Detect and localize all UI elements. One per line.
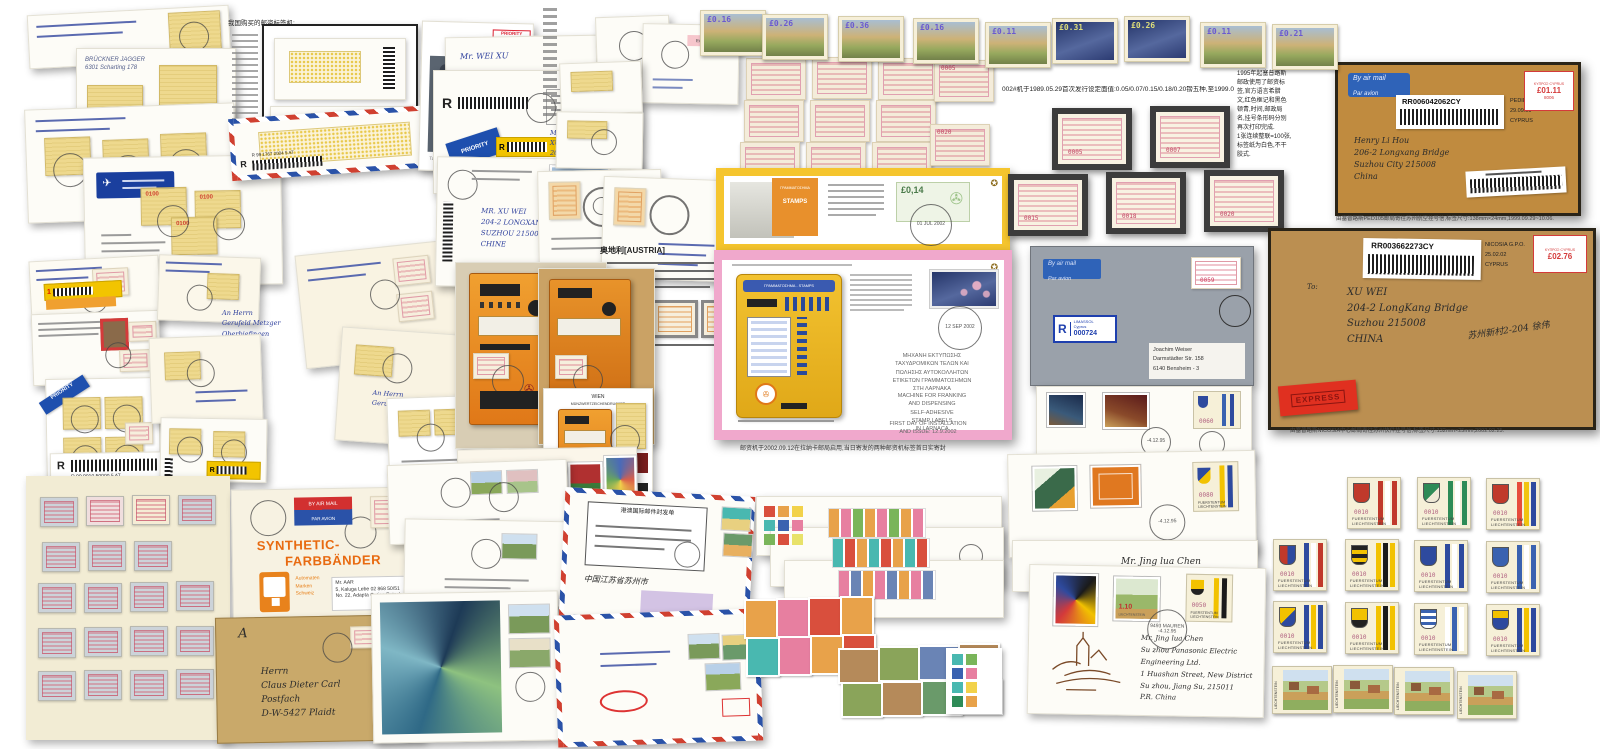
album-frama-stamp (88, 541, 126, 571)
country-text: FUERSTENTUMLIECHTENSTEIN (1190, 611, 1218, 619)
logo-cross (272, 598, 280, 606)
express-text: EXPRESS (1290, 389, 1346, 407)
cn-vertical-text (543, 4, 557, 116)
greek-text-block: ΜΗΧΑΝΗ ΕΚΤΥΠΩΣΗΣΤΑΧΥΔΡΟΜΙΚΩΝ ΤΕΛΩΝ ΚΑΙΠΩ… (872, 352, 992, 393)
stamp-mat: 0015 (1014, 180, 1082, 230)
mini-scene-stamp (881, 681, 923, 717)
atm-stamp-0060: 0060 (1193, 391, 1241, 429)
honeycomb-cover-1 (274, 38, 406, 100)
album-frama-stamp (84, 583, 122, 613)
cn-note-line: 胶式. (1237, 151, 1301, 160)
postmark-icon (71, 405, 99, 433)
stripe (1531, 482, 1536, 526)
machine-panel (564, 430, 606, 444)
posthorn-icon: ✇ (763, 390, 770, 399)
handwriting-line (658, 243, 714, 247)
title-line2: FARBBÄNDER (285, 552, 381, 569)
po-country: CYPRUS (1510, 117, 1546, 127)
blossom-stamp (930, 270, 998, 308)
handwriting-line (308, 273, 366, 281)
shield-icon (1351, 545, 1368, 565)
liechtenstein-arms-stamp: 0010 FUERSTENTUMLIECHTENSTEIN (1486, 604, 1540, 656)
stamp-print (815, 105, 865, 137)
shield-icon (1191, 580, 1204, 595)
society-logo-icon: ✪ (990, 178, 998, 189)
cyprus-stamp-machine: ΓΡΑΜΜΑΤΟΣΗΜΑ - STAMPS ✇ (736, 274, 842, 418)
stamp-print (134, 630, 164, 652)
to-marker: To: (1307, 283, 1318, 291)
postcard-atm-2 (600, 176, 727, 282)
barcode (507, 142, 547, 152)
brochure-caption-cn: 邮资机于2002.09.12在拉纳卡邮局启用,当日寄发的两种邮资机标签首日实寄封 (740, 446, 1010, 454)
stamp-value: 0010 (1354, 509, 1368, 516)
english-line: MACHINE FOR FRANKING (872, 392, 992, 400)
village-scene-stamp: LIECHTENSTEIN (1333, 665, 1393, 713)
handwritten-address: Henry Li Hou206-2 Longxang BridgeSuzhou … (1354, 135, 1449, 183)
stamp-print (129, 426, 149, 440)
stamp-value: £0.16 (707, 15, 731, 24)
card-stack-1 (559, 61, 643, 116)
postmark-icon (1219, 295, 1251, 327)
addr-line: China (1354, 171, 1449, 183)
handwritten-address: HerrnClaus Dieter CarlPostfachD-W-5427 P… (261, 665, 341, 722)
drawing-lines (1098, 473, 1132, 500)
stamp-value: £0.21 (1279, 29, 1303, 38)
postmark-date: -4.12.95 (1147, 439, 1165, 445)
honeycomb-meter-label (289, 51, 361, 83)
barcode (458, 97, 528, 109)
postmark-icon (416, 423, 445, 452)
stamp-art: £0.26 (766, 18, 824, 56)
scene-art (1283, 670, 1328, 710)
meter-number: 8006 (1544, 95, 1554, 100)
barcode (1368, 254, 1474, 276)
cyprus-pink-atm-stamp (810, 100, 870, 142)
synthetic-logo (259, 572, 290, 613)
barcode (217, 466, 247, 475)
poster-line1: ΓΡΑΜΜΑΤΟΣΗΜΑ (772, 186, 818, 190)
machine-title: ΓΡΑΜΜΑΤΟΣΗΜΑ - STAMPS (764, 284, 814, 288)
po-date: 25.02.02 (1485, 251, 1525, 261)
country-vertical-text: LIECHTENSTEIN (1335, 680, 1339, 708)
album-frama-stamp (84, 627, 122, 657)
stamp-value: £0.31 (1059, 23, 1083, 32)
stamp-print (617, 191, 642, 222)
stamp-value: 0010 (1280, 571, 1294, 578)
air-line1: By air mail (1048, 261, 1096, 267)
pink-atm-stamp: 0059 (1191, 257, 1241, 289)
house-shape (1411, 683, 1421, 691)
english-line: SELF-ADHESIVE (872, 409, 992, 417)
cyprus-pink-atm-stamp (746, 58, 806, 100)
stamp-print (132, 325, 152, 338)
cover-small-right: R (159, 417, 267, 483)
cn-airmail-env-2 (554, 608, 763, 747)
addr-line: P.R. China (1140, 692, 1263, 706)
stripe (1531, 545, 1536, 589)
stamp-print (182, 499, 212, 521)
text-line (828, 208, 884, 210)
handwritten-name: Mr. WEI XU (460, 51, 509, 61)
postmark-icon (488, 482, 519, 513)
small-stamp (508, 604, 551, 635)
postmark-icon (674, 541, 701, 568)
addr-block: Joachim WeiserDarmstädter Str. 1586140 B… (1153, 346, 1241, 374)
machine-display (747, 299, 777, 307)
country-vertical-text: LIECHTENSTEIN (1396, 682, 1400, 710)
christmas-stamp-1 (1047, 393, 1085, 427)
posthorn-icon: ✇ (950, 189, 963, 209)
address-line (101, 234, 131, 237)
shield-icon (1353, 483, 1370, 503)
stripe (1222, 394, 1226, 426)
first-day-line: AND ISSUE: 12.9.2002 (868, 428, 988, 436)
button-column (797, 317, 807, 375)
stamp-print (180, 585, 210, 607)
stamp-print (90, 500, 120, 522)
stamp-value: 0010 (1352, 571, 1366, 578)
frama-red-stamp (392, 255, 431, 287)
addr-line: CHINA (1347, 332, 1468, 348)
frama-red-stamp (125, 422, 153, 444)
postmark-icon (447, 169, 478, 200)
stamp-value: 0015 (1024, 215, 1038, 222)
country-text: FUERSTENTUMLIECHTENSTEIN (1278, 579, 1312, 588)
body-text (850, 309, 904, 311)
austria-atm-stamp (652, 300, 698, 338)
sub-line: Automaten (295, 575, 319, 583)
addr-line: Herrn (261, 665, 341, 680)
stamp-print (92, 545, 122, 567)
album-frama-stamp (86, 496, 124, 526)
abstract-painting (380, 600, 502, 734)
color-swatch (952, 682, 963, 693)
registration-code: RR003662273CY (1371, 241, 1434, 251)
stamp-print (397, 259, 427, 282)
album-frama-stamp (178, 495, 216, 525)
sender-line: BRÜCKNER JAGGER (85, 57, 145, 65)
r-mark: R (1058, 322, 1071, 336)
special-cancel-icon (649, 194, 690, 235)
r-mark: R (499, 143, 505, 152)
body-text (850, 279, 912, 281)
liechtenstein-arms-stamp: 0010 FUERSTENTUMLIECHTENSTEIN (1273, 539, 1327, 591)
text-line (828, 190, 884, 192)
body-text (850, 289, 912, 291)
stamp-print (42, 675, 72, 697)
brown-envelope-1: By air mail Par avion RR006042062CY PEDI… (1335, 62, 1581, 216)
stamp-value: 0059 (1200, 277, 1214, 284)
machine-display (565, 416, 589, 424)
mini-stamp-strip-2 (832, 538, 930, 568)
po-country: CYPRUS (1485, 261, 1525, 271)
address-line (445, 578, 529, 581)
synthetic-sub: AutomatenMarkenSchweiz (295, 575, 320, 598)
cn-note-line: 标签纸为白色,不干 (1237, 142, 1301, 151)
cyprus-atm-stamp: £0.31 (1052, 18, 1118, 64)
brochure-yellow: ΓΡΑΜΜΑΤΟΣΗΜΑ STAMPS £0,14 ✇ 01 JUL 2002 … (716, 168, 1010, 252)
shield-icon (1423, 483, 1440, 503)
austria-heading: 奥地利[AUSTRIA] (600, 246, 665, 256)
country-text: FUERSTENTUMLIECHTENSTEIN (1491, 518, 1525, 527)
red-meter-stamp: ΚΥΠΡΟΣ·CYPRUS £02.76 (1533, 235, 1587, 273)
marking-a: A (238, 626, 248, 641)
postmark-icon (177, 436, 203, 462)
shield-icon (1420, 609, 1437, 629)
cn-stamp (687, 633, 720, 660)
cyprus-atm-stamp: £0.16 (913, 18, 979, 64)
stamp-value: £0.11 (1207, 27, 1231, 36)
mini-atm-stamp (840, 596, 874, 636)
album-frama-stamp (176, 626, 214, 656)
art-stamp (1032, 466, 1077, 511)
stripe (1318, 605, 1323, 649)
stamp-print (134, 586, 164, 608)
postmark-date: 12 SEP 2002 (945, 325, 974, 331)
album-frama-stamp (38, 628, 76, 658)
barcode-vertical (383, 47, 395, 89)
brochure-pink: ✪ ΓΡΑΜΜΑΤΟΣΗΜΑ - STAMPS ✇ 12 SEP (714, 250, 1012, 440)
handwriting-line (195, 390, 247, 394)
village-sketch-drawing (1046, 627, 1142, 695)
postmark-town-date: -4.12.95 (1158, 519, 1176, 525)
sub-line: Schweiz (296, 590, 320, 598)
registered-label: R LIMASSOLCyprus000724 (1053, 315, 1117, 343)
stamp-value: 0010 (1352, 634, 1366, 641)
stamp-art: £0.31 (1056, 22, 1114, 60)
framed-atm-stamp: 0015 (1008, 174, 1088, 236)
cn-stamp (705, 662, 742, 691)
bird-icon: ✈ (102, 176, 111, 189)
shield-icon (1420, 546, 1437, 566)
greek-line: ΠΩΛΗΣΗΣ ΑΥΤΟΚΟΛΛΗΤΩΝ (872, 369, 992, 377)
addr-line: Suzhou 215008 (1347, 316, 1468, 332)
addr-line: Claus Dieter Carl (261, 679, 341, 694)
envelope2-caption: 由塞普路斯NICOSIA中心邮局寄往苏州快件挂号信,标签尺寸:132mm×25m… (1290, 428, 1590, 435)
red-label-small (722, 698, 751, 717)
village-scene-stamp: LIECHTENSTEIN (1272, 666, 1332, 714)
postmark-icon (186, 284, 213, 311)
handwriting-line (166, 261, 222, 265)
machine-panel (557, 318, 621, 336)
envelope1-caption: 由塞普路斯PED105邮局寄往苏州航空挂号信,标签尺寸:138mm×24mm,1… (1336, 216, 1592, 223)
stamp-print (88, 587, 118, 609)
house-shape (1429, 687, 1441, 695)
album-frama-stamp (38, 583, 76, 613)
machine-keys (785, 297, 829, 311)
addr-line: Joachim Weiser (1153, 346, 1241, 355)
addr-line: D-W-5427 Plaidt (261, 706, 341, 721)
shield-icon (1197, 468, 1210, 484)
stamp-value: 0020 (937, 129, 951, 136)
stamp-print (552, 185, 577, 215)
small-stamp (501, 533, 537, 560)
machine-buttons (480, 302, 520, 308)
machine-display (480, 284, 520, 296)
liechtenstein-arms-stamp: 0010 FUERSTENTUMLIECHTENSTEIN (1414, 603, 1468, 655)
stamp-print (88, 674, 118, 696)
frama-red-stamp (396, 291, 435, 323)
stamp-art: £0.11 (989, 26, 1047, 64)
country-text: FUERSTENTUMLIECHTENSTEIN (1491, 644, 1525, 653)
orange-atm-stamp (548, 181, 581, 220)
stamp-print (658, 306, 692, 332)
cyprus-atm-stamp: £0.16 (700, 10, 766, 56)
greek-line: ΜΗΧΑΝΗ ΕΚΤΥΠΩΣΗΣ (872, 352, 992, 360)
cyprus-pink-atm-stamp (878, 58, 938, 100)
addr-line: 204-2 LongKang Bridge (1347, 301, 1468, 317)
liechtenstein-arms-stamp: 0010 FUERSTENTUMLIECHTENSTEIN (1486, 478, 1540, 530)
album-frama-stamp (84, 670, 122, 700)
second-barcode-label (1465, 166, 1566, 197)
cyprus-pink-atm-stamp (812, 57, 872, 99)
stamp-value: 0007 (1166, 147, 1180, 154)
stamp-value: 0010 (1493, 636, 1507, 643)
first-day-line: FIRST DAY OF INSTALLATION (868, 420, 988, 428)
r-number: 000724 (1074, 330, 1097, 337)
airmail-cover-honeycomb: R R 99 1767 2004 5 AT (228, 105, 437, 181)
stamp-value: 0020 (1220, 211, 1234, 218)
stamp-value: 0060 (1199, 418, 1213, 425)
country-text: FUERSTENTUMLIECHTENSTEIN (1419, 643, 1453, 652)
stamp-print (817, 62, 867, 94)
stamp-mat: 0005 (1058, 114, 1126, 164)
owl-art-stamp (1053, 573, 1098, 626)
sender-label: BRÜCKNER JAGGER 6301 Scharting 178 (85, 57, 145, 73)
cyprus-pink-atm-stamp (744, 100, 804, 142)
header-line (732, 264, 852, 266)
framed-atm-stamp: 0005 (1052, 108, 1132, 170)
house-shape (1307, 686, 1319, 694)
handwriting-line (601, 663, 657, 667)
stamp-print (881, 105, 931, 137)
stamp-print (138, 545, 168, 567)
address-line (101, 241, 165, 244)
stamp-print (46, 546, 76, 568)
country-text: FUERSTENTUMLIECHTENSTEIN (1198, 500, 1226, 508)
album-frama-stamp (132, 495, 170, 525)
express-label: EXPRESS (1278, 380, 1358, 417)
stamp-value: 1.10 (1119, 604, 1133, 611)
cn-note-line: 1995年起塞普路斯 (1237, 70, 1301, 79)
country-text: FUERSTENTUMLIECHTENSTEIN (1422, 517, 1456, 526)
handwritten-address: Mr. Jing lua ChenSu zhou Panasonic Elect… (1140, 633, 1264, 706)
stamp-value: 0010 (1493, 510, 1507, 517)
cn-airmail-env-1: 港澳国际邮件封发单 中国江苏省苏州市 (559, 487, 756, 629)
body-text (850, 274, 912, 276)
scene-art (1344, 669, 1389, 709)
house-shape (1289, 682, 1299, 690)
color-swatch (764, 534, 775, 545)
r-details: LIMASSOLCyprus000724 (1074, 320, 1097, 338)
stamp-print (400, 295, 430, 318)
machine-header: ΓΡΑΜΜΑΤΟΣΗΜΑ - STAMPS (743, 280, 835, 292)
christmas-stamp-2 (1103, 393, 1149, 429)
stamp-value: £0.11 (992, 27, 1016, 36)
album-frama-stamp (130, 626, 168, 656)
stamp-value: 0100 (200, 194, 213, 200)
orange-atm-stamp (613, 187, 646, 226)
country-vertical-text: LIECHTENSTEIN (1274, 681, 1278, 709)
liechtenstein-arms-stamp: 0010 FUERSTENTUMLIECHTENSTEIN (1414, 540, 1468, 592)
stamp-art: £0.16 (917, 22, 975, 60)
gray-cover: By air mail Par avion 0059 R LIMASSOLCyp… (1030, 246, 1254, 386)
machine-slot (480, 344, 530, 350)
stamp-value: £0.16 (920, 23, 944, 32)
text-line (653, 86, 683, 89)
machine-dial (602, 302, 616, 316)
house-shape (1492, 691, 1504, 699)
color-swatch (952, 696, 963, 707)
color-swatch (952, 668, 963, 679)
stamp-print (883, 63, 933, 95)
stripe (1227, 465, 1233, 507)
output-slot (781, 403, 807, 409)
cyprus-pink-atm-stamp: 0020 (930, 124, 990, 166)
stripe (1462, 481, 1467, 525)
mini-scene-stamp (841, 682, 883, 718)
mini-atm-stamp (746, 637, 780, 677)
registration-code: RR006042062CY (1402, 97, 1461, 106)
liechtenstein-arms-stamp: 0010 FUERSTENTUMLIECHTENSTEIN (1347, 477, 1401, 529)
airmail-text (122, 179, 164, 182)
red-meter-stamp: ΚΥΠΡΟΣ·CYPRUS £01.11 8006 (1524, 71, 1574, 111)
first-day-block: FIRST DAY OF INSTALLATIONAND ISSUE: 12.9… (868, 420, 988, 437)
cyprus-atm-stamp: £0.36 (838, 16, 904, 62)
stripe (1230, 394, 1234, 426)
text-line (828, 214, 876, 216)
air-line1: By air mail (1353, 75, 1405, 82)
color-swatch (952, 654, 963, 665)
handwriting-line (36, 128, 110, 133)
mini-scene-stamp (838, 648, 880, 684)
r-sub: Cyprus (1074, 324, 1087, 329)
stamp-art: £0.16 (704, 14, 762, 52)
stamp-print (44, 501, 74, 523)
stamp-value: 0010 (1424, 509, 1438, 516)
english-line: AND DISPENSING (872, 400, 992, 408)
body-text (850, 304, 912, 306)
stamp-value: 0100 (145, 191, 158, 197)
house-shape (1474, 687, 1484, 695)
po-name: NICOSIA G.P.O. (1485, 241, 1525, 251)
stamp-value: £0.26 (769, 19, 793, 28)
registered-r: R (240, 159, 247, 169)
stripe (1390, 606, 1395, 650)
stamp-value: 0010 (1421, 635, 1435, 642)
price-list-panel (747, 317, 791, 377)
liechtenstein-arms-stamp: 0010 FUERSTENTUMLIECHTENSTEIN (1345, 602, 1399, 654)
stamp-print (134, 674, 164, 696)
album-frama-stamp (134, 541, 172, 571)
fdc-christmas: 0060 -4.12.95 (1036, 386, 1252, 460)
mini-atm-stamp (776, 598, 810, 638)
stamp-mat: 0020 (1210, 176, 1278, 226)
text-line (828, 184, 884, 186)
code-line (1486, 171, 1542, 176)
handwritten-cn: 中国江苏省苏州市 (584, 573, 648, 587)
address-line (445, 586, 511, 589)
brochure-inner: ✪ ΓΡΑΜΜΑΤΟΣΗΜΑ - STAMPS ✇ 12 SEP (722, 260, 1004, 430)
album-frama-stamp (42, 542, 80, 572)
color-swatch (966, 682, 977, 693)
form-line (595, 545, 665, 551)
mini-stamp-strip-1 (828, 508, 926, 538)
brown-envelope-2: RR003662273CY NICOSIA G.P.O. 25.02.02 CY… (1268, 228, 1596, 430)
postmark-icon (186, 359, 215, 388)
first-day-postmark: 12 SEP 2002 (938, 306, 982, 350)
cyprus-atm-stamp: £0.26 (1124, 16, 1190, 62)
